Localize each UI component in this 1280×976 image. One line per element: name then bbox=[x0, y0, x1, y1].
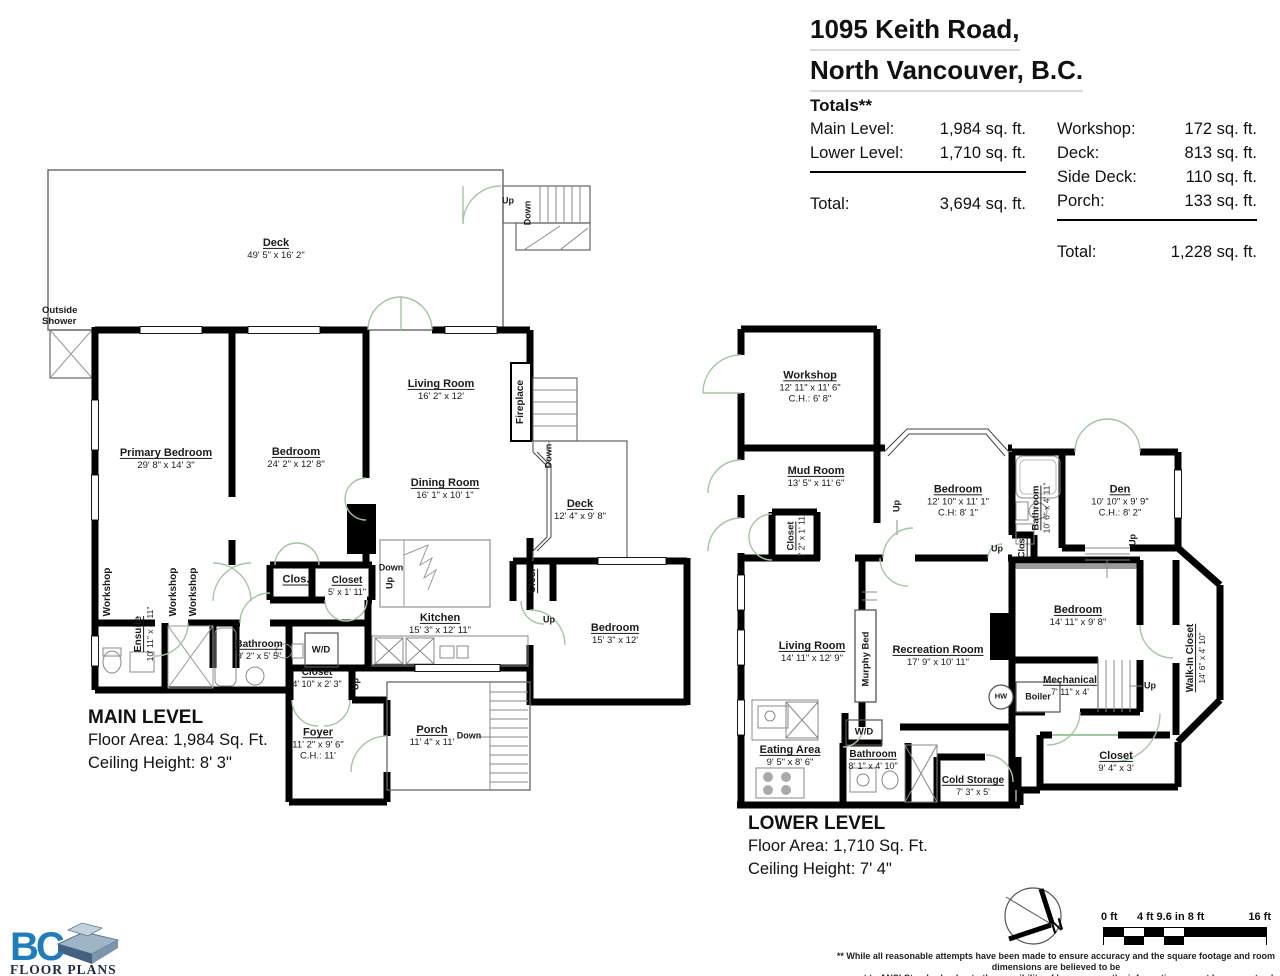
room-label-hot-water: HW bbox=[995, 693, 1008, 702]
totals-title: Totals** bbox=[810, 96, 872, 116]
room-label-closet-den: Clos. bbox=[1017, 536, 1028, 558]
totals-label: Total: bbox=[1057, 243, 1096, 262]
property-address: 1095 Keith Road, North Vancouver, B.C. bbox=[810, 10, 1083, 92]
totals-value: 813 sq. ft. bbox=[1185, 144, 1257, 168]
main-level-floor-area: Floor Area: 1,984 Sq. Ft. bbox=[88, 729, 268, 752]
room-label-side-deck: Deck 12' 4" x 9' 8" bbox=[554, 498, 606, 522]
room-label-workshop-a: Workshop bbox=[102, 568, 114, 617]
totals-row-total: Total: 3,694 sq. ft. bbox=[810, 195, 1026, 214]
stair-label-up: Up bbox=[893, 500, 902, 512]
room-label-bedroom-1: Bedroom 12' 10" x 11' 1" C.H: 8' 1" bbox=[927, 483, 989, 518]
totals-value: 133 sq. ft. bbox=[1185, 192, 1257, 216]
room-label-boiler: Boiler bbox=[1025, 692, 1051, 703]
room-label-foyer: Foyer 11' 2" x 9' 6" C.H.: 11' bbox=[292, 726, 343, 761]
totals-row-deck: Deck: 813 sq. ft. bbox=[1057, 144, 1257, 168]
room-label-closet-deck: Clos. bbox=[527, 569, 539, 593]
address-line-1: 1095 Keith Road, bbox=[810, 10, 1020, 51]
room-label-workshop-c: Workshop bbox=[188, 568, 200, 617]
scale-bar-labels: 0 ft 4 ft 9.6 in 8 ft 16 ft bbox=[1103, 911, 1267, 925]
totals-label: Workshop: bbox=[1057, 120, 1136, 144]
room-label-outside-shower: Outside Shower bbox=[42, 305, 96, 327]
room-label-closet-hall: Closet 5' x 1' 11" bbox=[328, 575, 366, 597]
totals-value: 1,984 sq. ft. bbox=[940, 120, 1026, 144]
stair-label-up: Up bbox=[991, 545, 1003, 554]
totals-value: 3,694 sq. ft. bbox=[940, 195, 1026, 214]
stair-label-up: Up bbox=[386, 577, 395, 589]
room-label-closet-foyer: Closet 4' 10" x 2' 3" bbox=[292, 667, 341, 689]
room-label-kitchen: Kitchen 15' 3" x 12' 11" bbox=[409, 612, 471, 636]
lower-level-ceiling-height: Ceiling Height: 7' 4" bbox=[748, 858, 928, 881]
totals-value: 1,228 sq. ft. bbox=[1171, 243, 1257, 262]
lower-level-floor-area: Floor Area: 1,710 Sq. Ft. bbox=[748, 835, 928, 858]
room-label-primary-bedroom: Primary Bedroom 29' 8" x 14' 3" bbox=[120, 447, 212, 471]
totals-right-column: Workshop: 172 sq. ft. Deck: 813 sq. ft. … bbox=[1057, 120, 1257, 262]
totals-label: Side Deck: bbox=[1057, 168, 1137, 192]
room-label-murphy-bed: Murphy Bed bbox=[860, 632, 871, 687]
scale-label-mid: 4 ft 9.6 in 8 ft bbox=[1137, 911, 1204, 923]
room-label-closet-mud: Closet 5' 2" x 1' 11" bbox=[785, 513, 806, 559]
room-label-recreation-room: Recreation Room 17' 9" x 10' 11" bbox=[892, 644, 983, 668]
room-label-closet-bedroom: Closet 9' 4" x 3' bbox=[1098, 750, 1134, 774]
stair-label-up: Up bbox=[352, 678, 361, 690]
lower-level-summary: LOWER LEVEL Floor Area: 1,710 Sq. Ft. Ce… bbox=[748, 812, 928, 881]
lower-level-title: LOWER LEVEL bbox=[748, 812, 928, 835]
totals-label: Porch: bbox=[1057, 192, 1105, 216]
totals-rule bbox=[1057, 219, 1257, 221]
stair-label-up: Up bbox=[502, 197, 514, 206]
stair-label-down: Down bbox=[457, 732, 482, 741]
stair-label-up: Up bbox=[1144, 682, 1156, 691]
totals-left-column: Main Level: 1,984 sq. ft. Lower Level: 1… bbox=[810, 120, 1026, 214]
main-level-summary: MAIN LEVEL Floor Area: 1,984 Sq. Ft. Cei… bbox=[88, 706, 268, 775]
totals-rule bbox=[810, 171, 1026, 173]
room-label-bathroom-1: Bathroom 10' 6" x 4' 11" bbox=[1030, 483, 1051, 534]
room-label-bedroom-2: Bedroom 24' 2" x 12' 8" bbox=[267, 446, 324, 470]
main-level-title: MAIN LEVEL bbox=[88, 706, 268, 729]
totals-row-lower-level: Lower Level: 1,710 sq. ft. bbox=[810, 144, 1026, 168]
room-label-cold-storage: Cold Storage 7' 3" x 5' bbox=[942, 775, 1004, 797]
disclaimer: ** While all reasonable attempts have be… bbox=[833, 951, 1279, 976]
totals-label: Deck: bbox=[1057, 144, 1099, 168]
room-label-closet-small: Clos. bbox=[283, 574, 310, 587]
room-label-workshop: Workshop 12' 11" x 11' 6" C.H.: 6' 8" bbox=[779, 369, 840, 404]
totals-row-total: Total: 1,228 sq. ft. bbox=[1057, 243, 1257, 262]
totals-row-porch: Porch: 133 sq. ft. bbox=[1057, 192, 1257, 216]
room-label-den: Den 10' 10" x 9' 9" C.H.: 8' 2" bbox=[1091, 483, 1148, 518]
totals-label: Total: bbox=[810, 195, 849, 214]
room-label-bedroom-3: Bedroom 15' 3" x 12' bbox=[591, 622, 639, 646]
room-label-deck: Deck 49' 5" x 16' 2" bbox=[247, 237, 304, 261]
compass-north-label: N bbox=[1047, 915, 1067, 938]
room-label-washer-dryer: W/D bbox=[312, 644, 330, 655]
room-label-washer-dryer-lower: W/D bbox=[855, 726, 873, 737]
disclaimer-line-1: ** While all reasonable attempts have be… bbox=[833, 951, 1279, 973]
stair-label-up: Up bbox=[543, 616, 555, 625]
room-label-living-room: Living Room 16' 2" x 12' bbox=[408, 378, 475, 402]
totals-label: Lower Level: bbox=[810, 144, 904, 168]
main-level-ceiling-height: Ceiling Height: 8' 3" bbox=[88, 752, 268, 775]
room-label-workshop-b: Workshop bbox=[168, 568, 180, 617]
room-label-porch: Porch 11' 4" x 11' bbox=[410, 724, 455, 748]
scale-label-zero: 0 ft bbox=[1101, 911, 1118, 923]
address-line-2: North Vancouver, B.C. bbox=[810, 51, 1083, 92]
totals-row-workshop: Workshop: 172 sq. ft. bbox=[1057, 120, 1257, 144]
room-label-eating-area: Eating Area 9' 5" x 8' 6" bbox=[760, 744, 821, 768]
stair-label-down: Down bbox=[379, 564, 404, 573]
room-label-fireplace: Fireplace bbox=[515, 380, 527, 424]
room-label-ensuite: Ensuite 10' 11" x 5' 11" bbox=[133, 607, 155, 662]
totals-row-side-deck: Side Deck: 110 sq. ft. bbox=[1057, 168, 1257, 192]
room-label-walk-in-closet: Walk-In Closet 14' 6" x 4' 10" bbox=[1185, 624, 1207, 693]
room-label-living-room-lower: Living Room 14' 11" x 12' 9" bbox=[779, 640, 846, 664]
room-label-bathroom-2: Bathroom 8' 1" x 4' 10" bbox=[848, 749, 897, 771]
totals-row-main-level: Main Level: 1,984 sq. ft. bbox=[810, 120, 1026, 144]
stair-label-up: Up bbox=[1129, 534, 1138, 546]
totals-value: 1,710 sq. ft. bbox=[940, 144, 1026, 168]
room-label-dining-room: Dining Room 16' 1" x 10' 1" bbox=[411, 477, 479, 501]
totals-value: 172 sq. ft. bbox=[1185, 120, 1257, 144]
compass-icon bbox=[1005, 888, 1061, 944]
scale-label-end: 16 ft bbox=[1248, 911, 1271, 923]
logo-floor-plans-text: FLOOR PLANS bbox=[10, 962, 117, 976]
stair-label-down: Down bbox=[524, 201, 533, 226]
scale-bar-graphic bbox=[1103, 927, 1267, 945]
scale-bar: 0 ft 4 ft 9.6 in 8 ft 16 ft bbox=[1103, 911, 1267, 945]
floor-plan-page: BC FLOOR PLANS N 1095 Keith Road, North … bbox=[0, 0, 1280, 976]
bc-floor-plans-logo bbox=[58, 923, 118, 964]
room-label-mud-room: Mud Room 13' 5" x 11' 6" bbox=[788, 465, 845, 489]
room-label-bathroom: Bathroom 9' 2" x 5' 5" bbox=[235, 639, 282, 661]
totals-label: Main Level: bbox=[810, 120, 894, 144]
totals-value: 110 sq. ft. bbox=[1186, 168, 1257, 192]
room-label-bedroom-lower: Bedroom 14' 11" x 9' 8" bbox=[1050, 604, 1107, 628]
stair-label-down: Down bbox=[545, 444, 554, 469]
